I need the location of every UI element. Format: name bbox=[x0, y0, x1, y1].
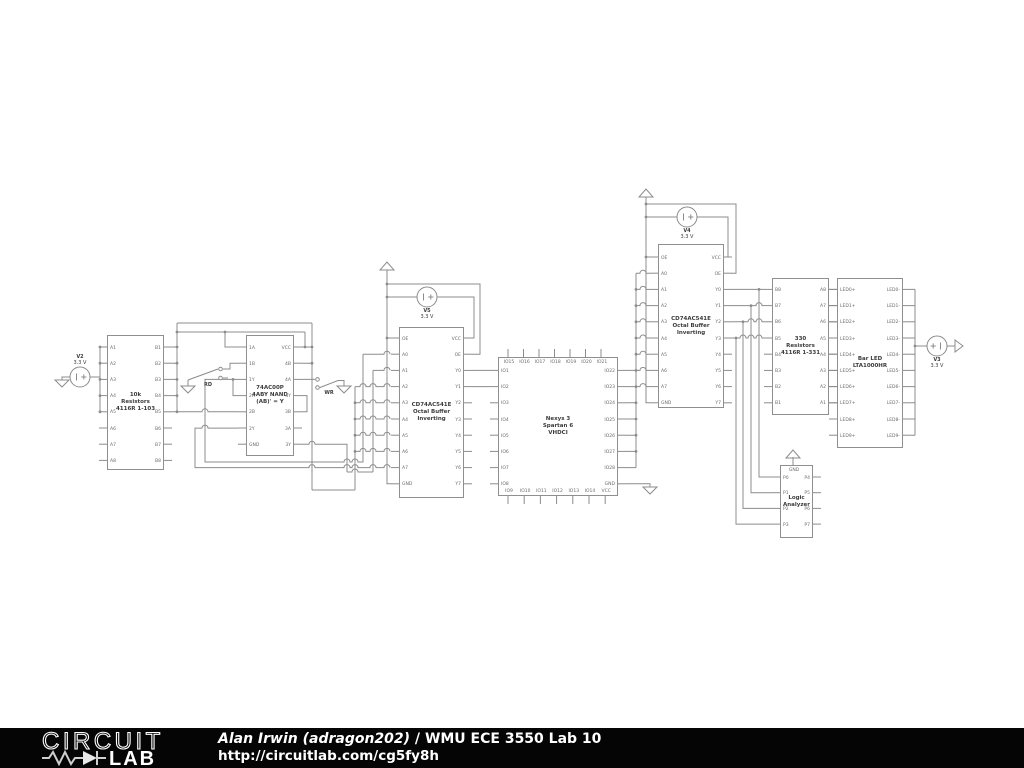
component-title-line: Inverting bbox=[417, 416, 445, 423]
pin-label: B5 bbox=[775, 337, 781, 342]
pin-label: A8 bbox=[110, 459, 116, 464]
pin-label: IO22 bbox=[604, 369, 615, 374]
component-title: 10kResistors4116R 1-103 bbox=[108, 336, 163, 469]
pin-label: 2B bbox=[249, 410, 255, 415]
pin-label: OE bbox=[715, 272, 721, 277]
pin-label: A4 bbox=[402, 418, 408, 423]
source-value: 3.3 V bbox=[669, 234, 705, 240]
component-title-line: CD74AC541E bbox=[412, 402, 452, 409]
pin-label: B7 bbox=[775, 304, 781, 309]
pin-label: P1 bbox=[783, 491, 789, 496]
component-title-line: 4116R 1-331 bbox=[781, 350, 820, 357]
component-buf2: CD74AC541EOctal BufferInvertingOEA0A1A2A… bbox=[658, 244, 724, 408]
pin-label: B5 bbox=[155, 410, 161, 415]
pin-label: A5 bbox=[110, 410, 116, 415]
pin-label: LED5+ bbox=[840, 369, 855, 374]
pin-label: A3 bbox=[110, 378, 116, 383]
source-label-v3: V33.3 V bbox=[919, 357, 955, 369]
ground-icon bbox=[643, 487, 657, 494]
pin-label: B8 bbox=[155, 459, 161, 464]
footer-attribution: Alan Irwin (adragon202) / WMU ECE 3550 L… bbox=[218, 731, 601, 748]
pin-label: A8 bbox=[820, 288, 826, 293]
pin-label: A2 bbox=[402, 385, 408, 390]
pin-label: 2Y bbox=[249, 427, 255, 432]
switch-name: RD bbox=[204, 382, 212, 388]
pin-label: 1A bbox=[249, 346, 255, 351]
pin-label: Y1 bbox=[715, 304, 721, 309]
pin-label: 3B bbox=[285, 410, 291, 415]
pin-label: LED8- bbox=[887, 418, 900, 423]
pin-label: A5 bbox=[820, 337, 826, 342]
pin-label: P6 bbox=[804, 507, 810, 512]
component-buf1: CD74AC541EOctal BufferInvertingOEA0A1A2A… bbox=[399, 327, 464, 498]
voltage-source-icon bbox=[677, 207, 697, 227]
pin-label: LED3+ bbox=[840, 337, 855, 342]
component-title-line: 74AC00P bbox=[256, 385, 284, 392]
logo-lab-text: LAB bbox=[109, 748, 156, 768]
pin-label: Y4 bbox=[715, 353, 721, 358]
component-title-line: Spartan 6 bbox=[543, 423, 573, 430]
component-la: LogicAnalyzerP0P1P2P3P4P5P6P7GND bbox=[780, 465, 813, 538]
source-label-v4: V43.3 V bbox=[669, 228, 705, 240]
pin-label: VCC bbox=[282, 346, 291, 351]
pin-label: IO4 bbox=[501, 418, 509, 423]
ground-icon bbox=[55, 380, 69, 387]
pin-label: IO3 bbox=[501, 401, 509, 406]
pin-label: LED1- bbox=[887, 304, 900, 309]
pin-label: A7 bbox=[110, 443, 116, 448]
pin-label: LED4+ bbox=[840, 353, 855, 358]
pin-label: IO7 bbox=[501, 466, 509, 471]
component-title-line: Nexys 3 bbox=[546, 416, 570, 423]
pin-label: B6 bbox=[155, 427, 161, 432]
component-title-line: Logic bbox=[788, 495, 804, 502]
pin-label: Y7 bbox=[715, 401, 721, 406]
pin-label: A3 bbox=[820, 369, 826, 374]
pin-label: Y2 bbox=[715, 320, 721, 325]
pin-label: B4 bbox=[155, 394, 161, 399]
pin-label: A1 bbox=[110, 346, 116, 351]
source-value: 3.3 V bbox=[409, 314, 445, 320]
pin-label: LED2- bbox=[887, 320, 900, 325]
switch-name: WR bbox=[324, 390, 333, 396]
schematic-canvas: 10kResistors4116R 1-103A1A2A3A4A5A6A7A8B… bbox=[0, 0, 1024, 728]
pin-label: GND bbox=[661, 401, 671, 406]
pin-label: A4 bbox=[661, 337, 667, 342]
component-barled: Bar LEDLTA1000HRLED0+LED1+LED2+LED3+LED4… bbox=[837, 278, 903, 448]
component-nand: 74AC00P4ABY NAND(AB)' = Y1A1B1Y2A2B2YGND… bbox=[246, 335, 294, 456]
pin-label: A1 bbox=[402, 369, 408, 374]
footer-bar: CIRCUIT LAB Alan Irwin (adragon202) / WM… bbox=[0, 728, 1024, 768]
component-title-line: 330 bbox=[795, 336, 806, 343]
component-title-line: VHDCI bbox=[548, 430, 568, 437]
pin-label: Y2 bbox=[455, 401, 461, 406]
pin-label: Y0 bbox=[715, 288, 721, 293]
component-title-line: Inverting bbox=[677, 330, 705, 337]
pin-label: IO21 bbox=[593, 360, 611, 365]
component-title-line: Resistors bbox=[786, 343, 815, 350]
pin-label: B4 bbox=[775, 353, 781, 358]
vdd-arrow-icon bbox=[380, 262, 394, 270]
pin-label: B3 bbox=[155, 378, 161, 383]
separator: / bbox=[410, 731, 425, 747]
source-label-v5: V53.3 V bbox=[409, 308, 445, 320]
pin-label: A0 bbox=[402, 353, 408, 358]
component-title-line: Resistors bbox=[121, 399, 150, 406]
pin-label: A0 bbox=[661, 272, 667, 277]
pin-label: LED0+ bbox=[840, 288, 855, 293]
pin-label: P4 bbox=[804, 476, 810, 481]
pin-label: GND bbox=[785, 468, 803, 473]
pin-label: 1Y bbox=[249, 378, 255, 383]
component-title-line: 4ABY NAND bbox=[252, 392, 288, 399]
circuitlab-export-page: { "meta": { "background": "#ffffff", "wi… bbox=[0, 0, 1024, 768]
pin-label: IO2 bbox=[501, 385, 509, 390]
pin-label: A6 bbox=[402, 450, 408, 455]
pin-label: B7 bbox=[155, 443, 161, 448]
pin-label: VCC bbox=[712, 256, 721, 261]
pin-label: B1 bbox=[775, 401, 781, 406]
pin-label: P5 bbox=[804, 491, 810, 496]
pin-label: A3 bbox=[661, 320, 667, 325]
pin-label: Y6 bbox=[715, 385, 721, 390]
pin-label: GND bbox=[605, 482, 615, 487]
pin-label: A2 bbox=[820, 385, 826, 390]
pin-label: A4 bbox=[110, 394, 116, 399]
pin-label: LED8+ bbox=[840, 418, 855, 423]
pin-label: LED1+ bbox=[840, 304, 855, 309]
pin-label: A5 bbox=[661, 353, 667, 358]
author-name: Alan Irwin (adragon202) bbox=[218, 731, 410, 747]
voltage-source-icon bbox=[417, 287, 437, 307]
pin-label: IO26 bbox=[604, 434, 615, 439]
component-title: Nexys 3Spartan 6VHDCI bbox=[499, 358, 617, 495]
pin-label: 3Y bbox=[285, 443, 291, 448]
pin-label: A1 bbox=[820, 401, 826, 406]
component-title-line: Bar LED bbox=[858, 356, 882, 363]
switch-label-wr: WR bbox=[311, 390, 347, 396]
vdd-arrow-icon bbox=[786, 450, 800, 458]
pin-label: VCC bbox=[452, 337, 461, 342]
pin-label: LED0- bbox=[887, 288, 900, 293]
pin-label: Y6 bbox=[455, 466, 461, 471]
component-title-line: CD74AC541E bbox=[671, 316, 711, 323]
node-arrow-icon bbox=[955, 340, 963, 352]
pin-label: 4A bbox=[285, 378, 291, 383]
pin-label: Y1 bbox=[455, 385, 461, 390]
pin-label: A1 bbox=[661, 288, 667, 293]
pin-label: 4Y bbox=[285, 394, 291, 399]
pin-label: OE bbox=[661, 256, 667, 261]
component-title-line: Octal Buffer bbox=[413, 409, 450, 416]
source-value: 3.3 V bbox=[62, 360, 98, 366]
pin-label: B8 bbox=[775, 288, 781, 293]
pin-label: 4B bbox=[285, 362, 291, 367]
voltage-source-icon bbox=[927, 336, 947, 356]
pin-label: LED6- bbox=[887, 385, 900, 390]
component-title-line: 4116R 1-103 bbox=[116, 406, 155, 413]
component-title-line: LTA1000HR bbox=[853, 363, 887, 370]
pin-label: Y3 bbox=[715, 337, 721, 342]
schematic-url[interactable]: http://circuitlab.com/cg5fy8h bbox=[218, 748, 601, 764]
component-title: 330Resistors4116R 1-331 bbox=[773, 279, 828, 414]
pin-label: P0 bbox=[783, 476, 789, 481]
pin-label: P7 bbox=[804, 523, 810, 528]
pin-label: A3 bbox=[402, 401, 408, 406]
pin-label: P3 bbox=[783, 523, 789, 528]
pin-label: A4 bbox=[820, 353, 826, 358]
circuitlab-logo: CIRCUIT LAB bbox=[40, 728, 225, 768]
component-nexys: Nexys 3Spartan 6VHDCIIO1IO2IO3IO4IO5IO6I… bbox=[498, 357, 618, 496]
pin-label: LED7- bbox=[887, 401, 900, 406]
schematic-title: WMU ECE 3550 Lab 10 bbox=[425, 731, 601, 747]
component-res330: 330Resistors4116R 1-331B8B7B6B5B4B3B2B1A… bbox=[772, 278, 829, 415]
source-value: 3.3 V bbox=[919, 363, 955, 369]
footer-text-block: Alan Irwin (adragon202) / WMU ECE 3550 L… bbox=[218, 731, 601, 764]
component-title-line: 10k bbox=[130, 392, 141, 399]
pin-label: IO24 bbox=[604, 401, 615, 406]
pin-label: A6 bbox=[661, 369, 667, 374]
pin-label: GND bbox=[249, 443, 259, 448]
component-title: CD74AC541EOctal BufferInverting bbox=[400, 328, 463, 497]
pin-label: LED9- bbox=[887, 434, 900, 439]
pin-label: A6 bbox=[820, 320, 826, 325]
pin-label: B2 bbox=[155, 362, 161, 367]
pin-label: B1 bbox=[155, 346, 161, 351]
pin-label: LED4- bbox=[887, 353, 900, 358]
pin-label: A6 bbox=[110, 427, 116, 432]
pin-label: IO28 bbox=[604, 466, 615, 471]
pin-label: IO25 bbox=[604, 418, 615, 423]
pin-label: IO27 bbox=[604, 450, 615, 455]
pin-label: LED6+ bbox=[840, 385, 855, 390]
pin-label: IO8 bbox=[501, 482, 509, 487]
pin-label: B3 bbox=[775, 369, 781, 374]
pin-label: P2 bbox=[783, 507, 789, 512]
pin-label: 2A bbox=[249, 394, 255, 399]
pin-label: LED9+ bbox=[840, 434, 855, 439]
pin-label: Y5 bbox=[455, 450, 461, 455]
voltage-source-icon bbox=[70, 367, 90, 387]
component-title: CD74AC541EOctal BufferInverting bbox=[659, 245, 723, 407]
pin-label: VCC bbox=[597, 489, 615, 494]
pin-label: A5 bbox=[402, 434, 408, 439]
component-res10k: 10kResistors4116R 1-103A1A2A3A4A5A6A7A8B… bbox=[107, 335, 164, 470]
pin-label: OE bbox=[402, 337, 408, 342]
pin-label: Y4 bbox=[455, 434, 461, 439]
pin-label: IO6 bbox=[501, 450, 509, 455]
pin-label: IO5 bbox=[501, 434, 509, 439]
pin-label: 3A bbox=[285, 427, 291, 432]
source-label-v2: V23.3 V bbox=[62, 354, 98, 366]
pin-label: LED7+ bbox=[840, 401, 855, 406]
pin-label: IO1 bbox=[501, 369, 509, 374]
vdd-arrow-icon bbox=[639, 189, 653, 197]
pin-label: B6 bbox=[775, 320, 781, 325]
pin-label: LED3- bbox=[887, 337, 900, 342]
pin-label: 1B bbox=[249, 362, 255, 367]
pin-label: A7 bbox=[402, 466, 408, 471]
pin-label: A2 bbox=[110, 362, 116, 367]
pin-label: A7 bbox=[820, 304, 826, 309]
switch-label-rd: RD bbox=[190, 382, 226, 388]
pin-label: Y5 bbox=[715, 369, 721, 374]
component-title-line: (AB)' = Y bbox=[256, 399, 284, 406]
pin-label: OE bbox=[455, 353, 461, 358]
component-title-line: Octal Buffer bbox=[672, 323, 709, 330]
pin-label: LED5- bbox=[887, 369, 900, 374]
pin-label: Y0 bbox=[455, 369, 461, 374]
pin-label: IO23 bbox=[604, 385, 615, 390]
pin-label: GND bbox=[402, 482, 412, 487]
pin-label: A7 bbox=[661, 385, 667, 390]
pin-label: B2 bbox=[775, 385, 781, 390]
pin-label: A2 bbox=[661, 304, 667, 309]
pin-label: Y3 bbox=[455, 418, 461, 423]
pin-label: LED2+ bbox=[840, 320, 855, 325]
pin-label: Y7 bbox=[455, 482, 461, 487]
